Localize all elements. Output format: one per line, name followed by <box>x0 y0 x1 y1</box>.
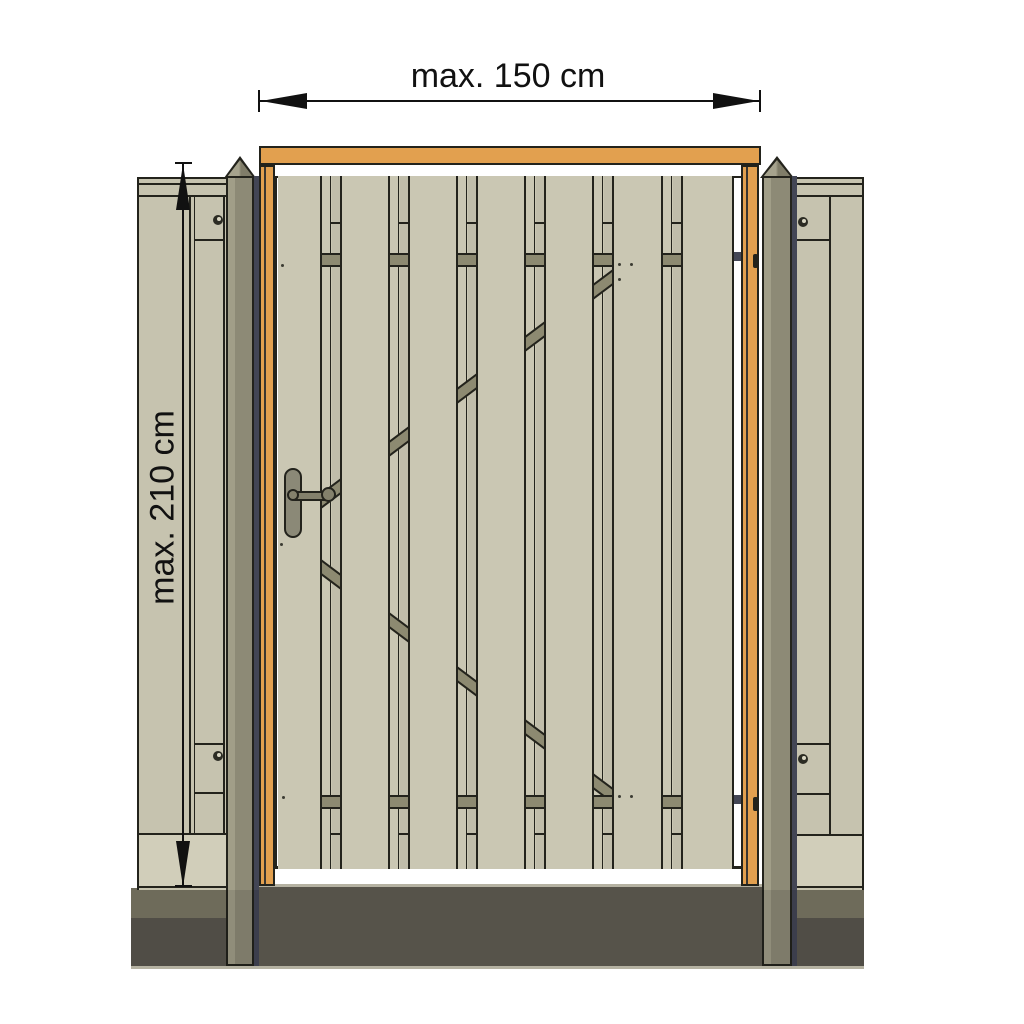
gate-frame-left-stile <box>259 165 275 886</box>
gap-shadow-line <box>671 176 673 869</box>
post-cap-face <box>763 160 791 177</box>
hinge-bracket <box>734 252 741 261</box>
back-plank-end-line <box>330 833 340 835</box>
back-plank-end-line <box>602 833 612 835</box>
board-edge-line <box>223 195 225 833</box>
hinge-icon <box>753 797 758 811</box>
frame-edge-line <box>264 167 266 884</box>
back-plank-end-line <box>671 833 681 835</box>
width-dimension-label: max. 150 cm <box>358 57 658 96</box>
top-rail-segment <box>388 253 410 267</box>
dimension-line <box>259 100 761 102</box>
bottom-rail-segment <box>456 795 478 809</box>
fence-cap-line <box>797 183 864 185</box>
diagonal-brace-segment <box>592 268 614 301</box>
fixing-dot <box>280 543 283 546</box>
bottom-rail-segment <box>524 795 546 809</box>
plinth-bottom-line <box>797 886 864 888</box>
board-break-line <box>797 743 829 745</box>
leaf-left-line <box>275 176 277 869</box>
dimension-end-tick <box>759 90 761 112</box>
arrowhead-left-icon <box>261 93 307 109</box>
screw-icon <box>798 217 808 227</box>
dimension-line <box>182 164 184 886</box>
arrowhead-down-icon <box>176 841 190 887</box>
back-plank-end-line <box>466 833 476 835</box>
board-break-line <box>797 793 829 795</box>
diagonal-brace-segment <box>524 320 546 353</box>
diagonal-brace-segment <box>524 718 546 751</box>
leaf-right-line <box>732 176 734 869</box>
post-cap-face <box>227 160 253 177</box>
fence-right-edge <box>862 177 864 890</box>
fixing-dot <box>618 263 621 266</box>
gate-planks <box>278 176 733 869</box>
gate-frame-right-stile <box>741 165 759 886</box>
back-plank-end-line <box>534 222 544 224</box>
back-plank-end-line <box>602 222 612 224</box>
screw-icon <box>798 754 808 764</box>
post-body <box>762 176 792 966</box>
bottom-rail-segment <box>388 795 410 809</box>
ground-center <box>254 887 797 966</box>
diagonal-brace-segment <box>456 665 478 698</box>
board-joint-line <box>189 195 191 833</box>
plank-gap <box>592 176 614 869</box>
fixing-dot <box>630 263 633 266</box>
ground-right-lower <box>797 918 864 966</box>
gap-shadow-line <box>534 176 536 869</box>
bottom-rail-segment <box>320 795 342 809</box>
ground-left-upper <box>131 888 226 918</box>
diagonal-brace-segment <box>388 425 410 458</box>
plank-gap <box>456 176 478 869</box>
bottom-rail-segment <box>592 795 614 809</box>
height-dimension-label: max. 210 cm <box>144 358 183 658</box>
arrowhead-right-icon <box>713 93 759 109</box>
diagonal-brace-segment <box>456 372 478 405</box>
fence-cap-line <box>797 177 864 179</box>
handle-knob <box>321 487 336 502</box>
plank-gap <box>524 176 546 869</box>
board-break-line <box>194 239 224 241</box>
gap-shadow-line <box>330 176 332 869</box>
board-break-line <box>194 792 224 794</box>
fixing-dot <box>618 795 621 798</box>
top-rail-segment <box>661 253 683 267</box>
fence-left-edge <box>137 177 139 890</box>
ground-bottom-edge <box>131 966 864 969</box>
gap-shadow-line <box>466 176 468 869</box>
top-rail-segment <box>320 253 342 267</box>
gate-leaf <box>275 176 741 869</box>
board-joint-line <box>829 195 831 834</box>
diagonal-brace-segment <box>320 558 342 591</box>
top-rail-segment <box>456 253 478 267</box>
top-rail-segment <box>592 253 614 267</box>
fixing-dot <box>630 795 633 798</box>
gap-shadow-line <box>398 176 400 869</box>
fixing-dot <box>282 796 285 799</box>
gate-drawing: max. 150 cm max. 210 cm <box>0 0 1024 1024</box>
back-plank-end-line <box>398 833 408 835</box>
screw-icon <box>213 751 223 761</box>
plank-gap <box>388 176 410 869</box>
fixing-dot <box>281 264 284 267</box>
post-body <box>226 176 254 966</box>
fixing-dot <box>618 278 621 281</box>
ground-right-upper <box>797 888 864 918</box>
back-plank-end-line <box>466 222 476 224</box>
handle-knob <box>287 489 299 501</box>
handle-escutcheon <box>284 468 302 538</box>
back-plank-end-line <box>534 833 544 835</box>
top-rail-segment <box>524 253 546 267</box>
post-underground-shade <box>226 890 259 966</box>
plank-gap <box>320 176 342 869</box>
hinge-icon <box>753 254 758 268</box>
screw-icon <box>213 215 223 225</box>
ground-left-lower <box>131 918 226 966</box>
hinge-bracket <box>734 795 741 804</box>
plank-gap <box>661 176 683 869</box>
bottom-rail-segment <box>661 795 683 809</box>
post-side-shade <box>792 176 797 966</box>
diagonal-brace-segment <box>388 611 410 644</box>
frame-edge-line <box>746 167 748 884</box>
gate-frame-top-beam <box>259 146 761 165</box>
back-plank-end-line <box>671 222 681 224</box>
right-fence-panel <box>797 177 864 890</box>
board-break-line <box>797 239 829 241</box>
back-plank-end-line <box>398 222 408 224</box>
arrowhead-up-icon <box>176 164 190 210</box>
post-underground-shade <box>762 890 797 966</box>
board-joint-line <box>194 195 195 833</box>
back-plank-end-line <box>330 222 340 224</box>
dimension-end-tick <box>258 90 260 112</box>
board-break-line <box>194 743 224 745</box>
fence-plinth <box>797 836 862 888</box>
